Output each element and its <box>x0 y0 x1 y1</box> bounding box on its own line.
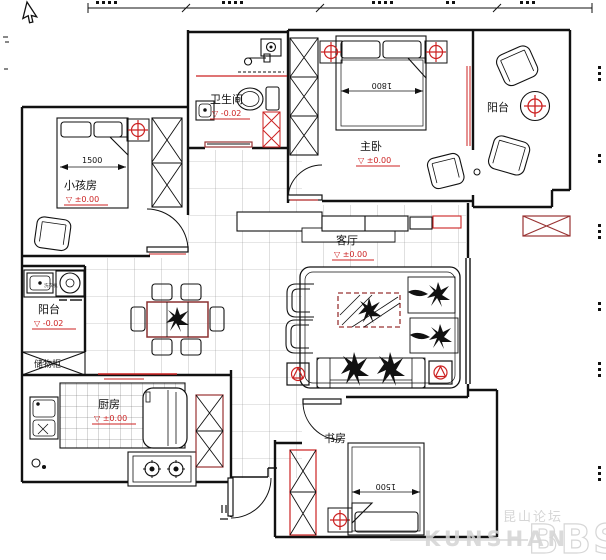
door-bathroom-sill <box>205 142 252 147</box>
master-elevation: ▽ ±0.00 <box>358 156 391 165</box>
side-table-right-2 <box>410 318 458 353</box>
balcony-door-handle <box>474 169 480 175</box>
storage-label: 储物柜 <box>34 358 61 370</box>
floor-drain-icon <box>32 459 40 467</box>
door-children <box>147 209 188 254</box>
bathroom-elevation: ▽ -0.02 <box>212 109 241 118</box>
kitchen <box>30 374 223 486</box>
study-bed-dim: 1500 <box>376 482 396 491</box>
fridge-icon <box>143 388 187 448</box>
master-label: 主卧 <box>360 140 382 153</box>
washing-machine-icon <box>56 271 84 296</box>
ceiling-target-master-1 <box>320 41 342 63</box>
kitchen-column-cabinet <box>196 395 223 467</box>
kitchen-sink-icon <box>30 397 58 439</box>
window-master-balcony <box>467 66 470 146</box>
master-bedroom <box>290 36 466 190</box>
study-label: 书房 <box>324 432 346 445</box>
entry-handle-icon <box>220 505 228 519</box>
cropped-dim-digits <box>96 1 535 4</box>
kitchen-elevation: ▽ ±0.00 <box>94 414 127 423</box>
children-room-label: 小孩房 <box>64 179 97 192</box>
washer-label: 洗衣机 <box>44 282 58 289</box>
floorplan-canvas: 1500 小孩房 ▽ ±0.00 卫生间 ▽ -0.02 <box>0 0 606 560</box>
ac-unit-box <box>523 216 570 236</box>
door-entry <box>220 478 271 519</box>
right-dimension-digits <box>598 66 601 481</box>
edge-marks <box>3 36 9 70</box>
children-bed-dim: 1500 <box>82 156 102 165</box>
ceiling-target-master-2 <box>425 41 447 63</box>
toilet-icon <box>237 87 279 110</box>
kitchen-label: 厨房 <box>98 398 120 411</box>
side-table-right-1 <box>408 277 455 313</box>
living-label: 客厅 <box>336 233 358 247</box>
speaker-right <box>429 361 452 384</box>
living-elevation: ▽ ±0.00 <box>334 250 367 259</box>
balcony-left-elevation: ▽ -0.02 <box>34 319 63 328</box>
top-dimension-line <box>88 1 592 13</box>
ceiling-target-children <box>127 119 149 141</box>
watermark-bbs: BBS <box>528 517 606 560</box>
bathroom-cabinet <box>263 112 280 147</box>
mouse-cursor <box>22 2 39 24</box>
stove-icon <box>128 452 196 486</box>
balcony-tr-label: 阳台 <box>487 100 509 114</box>
children-room <box>34 118 182 251</box>
study <box>290 443 424 535</box>
bathroom-label: 卫生间 <box>210 92 243 106</box>
coffee-table <box>338 293 400 327</box>
balcony-left-label: 阳台 <box>38 302 60 316</box>
children-elevation: ▽ ±0.00 <box>66 195 99 204</box>
sofa <box>317 352 425 388</box>
washer-spec-text <box>59 299 82 301</box>
balcony-table-target <box>521 92 550 121</box>
master-bed-dim: 1800 <box>372 81 392 90</box>
